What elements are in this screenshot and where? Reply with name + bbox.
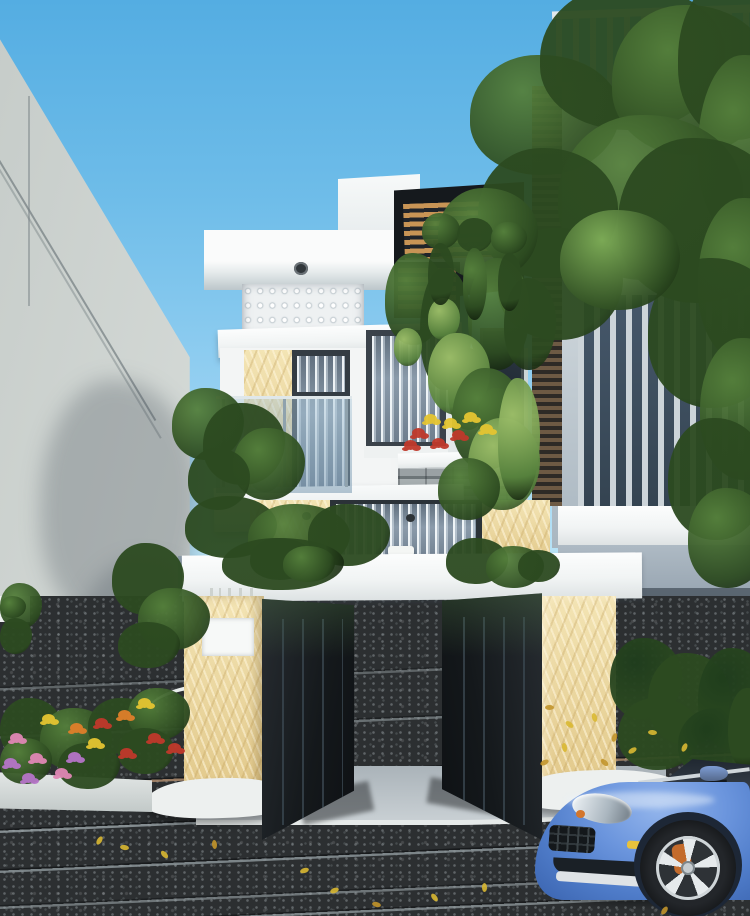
soffit-ceiling-light bbox=[294, 262, 308, 275]
wall-seam-line bbox=[28, 96, 30, 306]
planter-vase bbox=[248, 446, 282, 492]
pergola-wood-slats bbox=[403, 200, 517, 262]
turn-signal bbox=[576, 810, 585, 818]
porch-ceiling-light bbox=[302, 512, 311, 520]
blue-sports-car bbox=[535, 748, 750, 916]
wheel-hub-cap bbox=[681, 861, 695, 875]
pillar-inset-plate bbox=[202, 618, 254, 656]
railing-post bbox=[345, 399, 348, 487]
window-glass bbox=[372, 336, 440, 442]
neighbor-balcony-band bbox=[558, 506, 750, 546]
scene-rendering bbox=[0, 0, 750, 916]
porch-ceiling-light bbox=[406, 514, 415, 522]
railing-post bbox=[222, 399, 225, 487]
railing-post bbox=[283, 399, 286, 487]
vertical-slat-screen bbox=[578, 228, 750, 520]
small-planter-box bbox=[0, 596, 30, 622]
main-roof-slab bbox=[204, 230, 394, 290]
recessed-pergola-slats bbox=[398, 268, 456, 312]
wood-slat-wall bbox=[532, 86, 562, 506]
side-mirror bbox=[700, 766, 728, 781]
front-grille bbox=[548, 824, 596, 853]
